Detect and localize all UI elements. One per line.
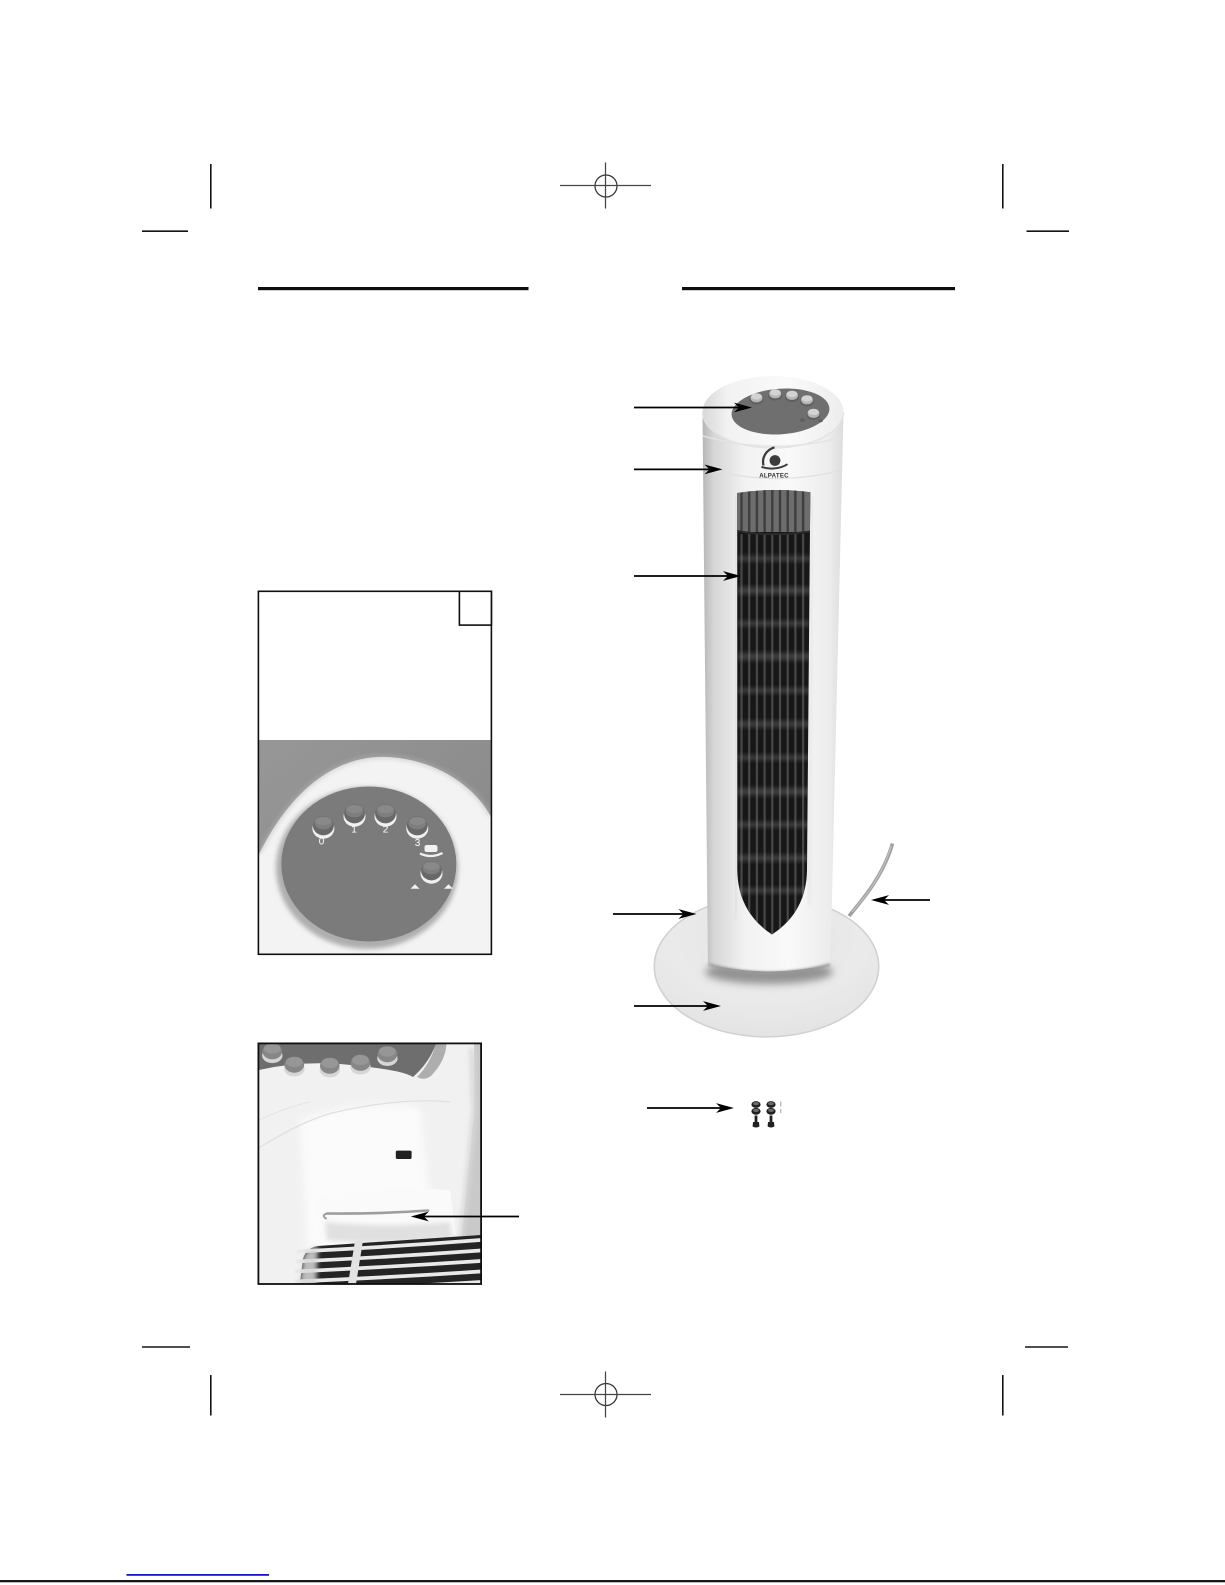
svg-text:2: 2: [383, 825, 389, 836]
svg-text:0: 0: [319, 837, 325, 848]
svg-text:3: 3: [415, 838, 421, 849]
svg-text:1: 1: [351, 825, 357, 836]
svg-text:ALPATEC: ALPATEC: [759, 472, 789, 479]
